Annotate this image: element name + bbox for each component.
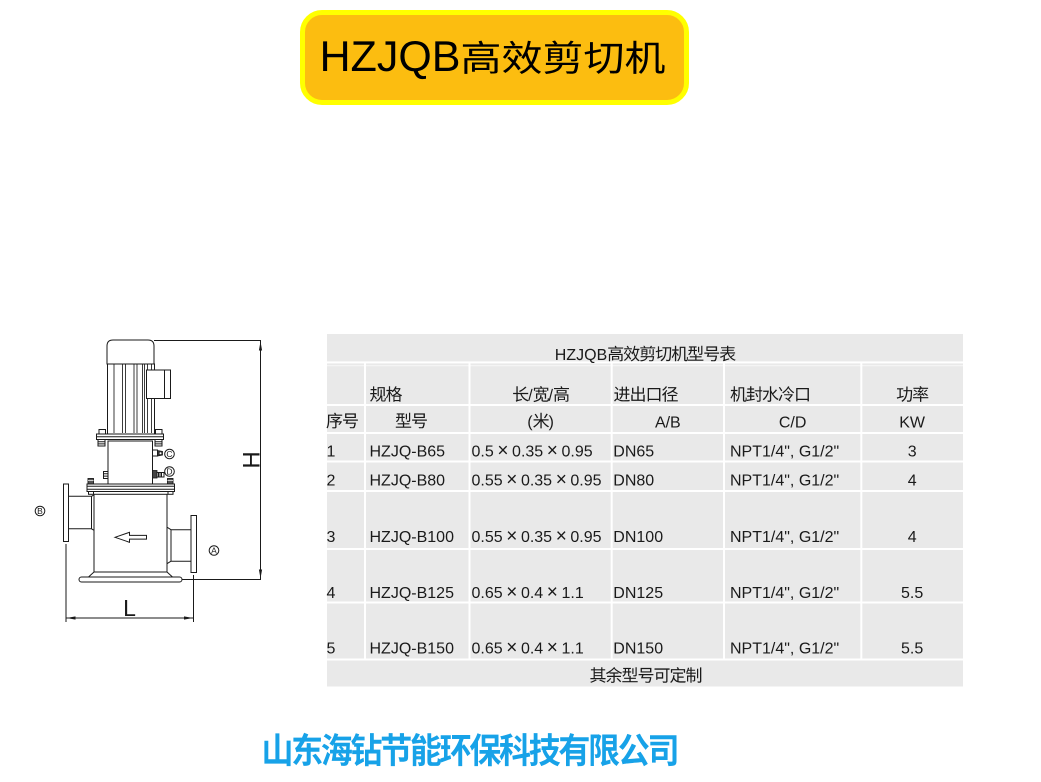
svg-text:A: A bbox=[211, 546, 217, 556]
svg-text:5: 5 bbox=[327, 641, 336, 658]
svg-text:KW: KW bbox=[899, 415, 926, 432]
svg-text:3: 3 bbox=[327, 529, 336, 546]
svg-text:2: 2 bbox=[327, 473, 336, 490]
svg-text:NPT1/4", G1/2": NPT1/4", G1/2" bbox=[730, 585, 839, 602]
svg-text:5.5: 5.5 bbox=[901, 641, 923, 658]
svg-text:4: 4 bbox=[908, 473, 917, 490]
svg-text:0.5×0.35×0.95: 0.5×0.35×0.95 bbox=[472, 441, 593, 462]
svg-text:HZJQ-B100: HZJQ-B100 bbox=[370, 529, 455, 546]
svg-text:D: D bbox=[166, 467, 172, 477]
svg-text:HZJQ-B80: HZJQ-B80 bbox=[370, 473, 446, 490]
svg-text:4: 4 bbox=[327, 585, 336, 602]
svg-text:NPT1/4", G1/2": NPT1/4", G1/2" bbox=[730, 473, 839, 490]
svg-text:NPT1/4", G1/2": NPT1/4", G1/2" bbox=[730, 529, 839, 546]
svg-text:L: L bbox=[123, 595, 136, 621]
svg-text:DN65: DN65 bbox=[613, 444, 654, 461]
svg-text:A/B: A/B bbox=[655, 415, 681, 432]
svg-text:C: C bbox=[166, 449, 172, 459]
svg-text:4: 4 bbox=[908, 529, 917, 546]
svg-text:DN100: DN100 bbox=[613, 529, 663, 546]
svg-text:DN80: DN80 bbox=[613, 473, 654, 490]
svg-text:0.65×0.4×1.1: 0.65×0.4×1.1 bbox=[472, 638, 584, 659]
svg-text:0.55×0.35×0.95: 0.55×0.35×0.95 bbox=[472, 526, 602, 547]
svg-text:H: H bbox=[239, 451, 266, 468]
svg-text:5.5: 5.5 bbox=[901, 585, 923, 602]
svg-text:C/D: C/D bbox=[779, 415, 807, 432]
svg-text:NPT1/4", G1/2": NPT1/4", G1/2" bbox=[730, 444, 839, 461]
svg-text:NPT1/4", G1/2": NPT1/4", G1/2" bbox=[730, 641, 839, 658]
svg-text:HZJQ-B150: HZJQ-B150 bbox=[370, 641, 455, 658]
svg-text:0.65×0.4×1.1: 0.65×0.4×1.1 bbox=[472, 582, 584, 603]
svg-text:DN125: DN125 bbox=[613, 585, 663, 602]
svg-text:HZJQ-B125: HZJQ-B125 bbox=[370, 585, 455, 602]
svg-text:3: 3 bbox=[908, 444, 917, 461]
svg-text:0.55×0.35×0.95: 0.55×0.35×0.95 bbox=[472, 470, 602, 491]
svg-text:HZJQ-B65: HZJQ-B65 bbox=[370, 444, 446, 461]
svg-text:B: B bbox=[37, 506, 43, 516]
svg-text:DN150: DN150 bbox=[613, 641, 663, 658]
svg-text:1: 1 bbox=[327, 444, 336, 461]
